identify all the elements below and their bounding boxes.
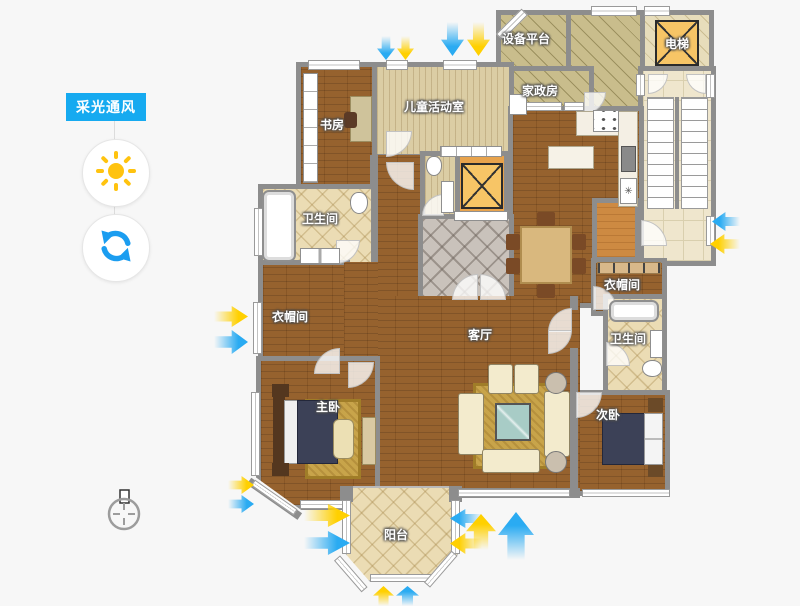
hallway[interactable] [344,262,378,362]
label-bathroom1: 卫生间 [302,210,338,227]
window [253,302,262,354]
window [458,489,570,497]
daylight-button[interactable] [82,139,150,207]
wind-arrow-down [441,22,464,56]
side-table [545,372,567,394]
window [251,392,260,476]
dining-table [520,226,572,284]
label-balcony: 阳台 [384,526,408,543]
mattress [284,400,298,464]
bathtub [609,300,659,322]
label-second-bedroom: 次卧 [596,406,620,423]
window [370,574,432,582]
wind-arrow-right [214,330,248,354]
bookshelf [303,73,318,183]
nightstand [272,463,289,476]
sun-icon [94,149,138,198]
window [636,74,645,96]
elevator-label: 电梯 [665,35,689,52]
toilet [642,360,662,377]
stairs-flight [647,97,674,209]
kids-dresser [440,146,502,157]
sofa-bench [482,449,540,473]
north-compass [98,484,150,541]
stairs-divider [675,97,679,209]
dining-chair [506,258,520,274]
toilet [350,192,368,214]
label-cloakroom1: 衣帽间 [272,308,308,325]
light-arrow-down [397,36,414,60]
label-bathroom2: 卫生间 [610,330,646,347]
dining-chair [537,284,555,298]
window [443,60,477,70]
sofa [544,391,570,457]
nightstand [648,463,663,477]
window [308,60,360,70]
wind-arrow-right [228,495,254,513]
cabinet [441,181,454,213]
label-master-bedroom: 主卧 [316,398,340,415]
window [591,6,637,16]
dining-chair [572,258,586,274]
dining-chair [506,234,520,250]
window [386,60,408,70]
fridge: ✳ [620,178,637,204]
light-arrow-up [373,586,394,606]
foyer-shelf [454,211,508,221]
window [644,6,670,16]
shaft-box [461,163,503,209]
wardrobe-rail [597,262,661,274]
mode-label: 采光通风 [66,93,146,121]
label-living-room: 客厅 [468,326,492,343]
sofa [458,393,484,455]
light-arrow-right [214,306,248,327]
wind-arrow-up [498,512,534,560]
wall-segment [570,348,578,494]
stove [593,110,619,132]
desk-chair [344,112,357,128]
window [706,74,715,98]
wind-arrow-left [712,212,740,231]
label-housekeeping: 家政房 [522,82,558,99]
wind-arrow-down [377,36,395,60]
window [582,489,670,497]
dresser [362,417,376,465]
dining-chair [537,212,555,226]
stairs-flight [681,97,708,209]
toilet [426,156,442,176]
label-cloakroom2: 衣帽间 [604,276,640,293]
label-kids-room: 儿童活动室 [404,98,464,115]
room-entry-hall[interactable] [592,198,640,262]
vanity [300,248,340,264]
side-table [545,451,567,473]
window [300,500,344,509]
label-equipment-platform: 设备平台 [502,30,550,47]
refresh-icon [96,226,136,271]
vanity [650,330,663,358]
dining-chair [572,234,586,250]
bathtub [262,190,296,262]
coffee-table [495,403,531,441]
kitchen-island [548,146,594,169]
wind-arrow-up [396,586,419,606]
window [526,102,562,111]
window [564,102,584,111]
nightstand [272,384,289,397]
label-study: 书房 [320,116,344,133]
sink [621,146,636,172]
armchair [488,364,513,394]
light-arrow-down [467,22,490,56]
refresh-button[interactable] [82,214,150,282]
nightstand [648,398,663,412]
bench [333,419,354,459]
elevator-box: 电梯 [655,20,699,66]
mattress [644,413,663,465]
armchair [514,364,539,394]
